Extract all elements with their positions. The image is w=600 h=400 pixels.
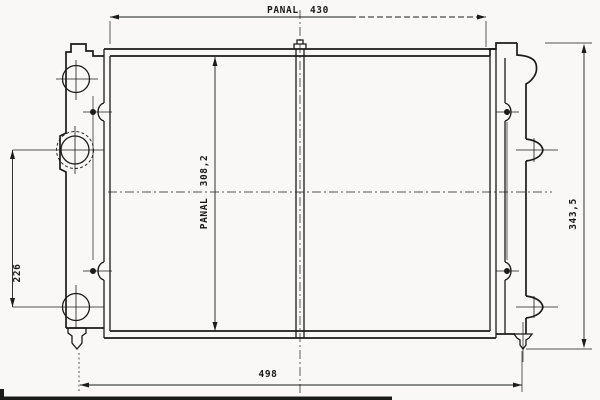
overall-width-label: 498	[259, 369, 278, 380]
dim-top-arrow-left	[110, 15, 119, 20]
dimension-overall-width: 498	[79, 351, 522, 392]
dimension-top-panel-width: PANAL 430	[110, 5, 486, 47]
radiator-technical-drawing: PANAL 430 PANAL 308,2 226 343,5 498	[0, 0, 600, 400]
panel-width-label: PANAL 430	[267, 5, 329, 16]
left-tank-top-bracket	[66, 44, 104, 63]
right-tank-top-bracket	[490, 43, 517, 56]
scan-artifacts	[0, 389, 392, 400]
scan-artifact-bottom-left	[0, 389, 4, 400]
left-tank-outer-edge	[60, 63, 66, 328]
overall-height-label: 343,5	[568, 198, 579, 230]
filler-neck-crosshair	[13, 126, 105, 174]
drain-plug	[68, 328, 86, 349]
dimension-left-fitting-spacing: 226	[10, 150, 23, 307]
right-tank-wall-bumps	[505, 103, 511, 280]
scan-artifact-bottom-strip	[0, 397, 392, 400]
left-tank-joint-bumps	[98, 103, 104, 280]
right-tank-core-joint	[490, 49, 496, 338]
dim-right-arrow-top	[582, 44, 587, 53]
dim-core-height-arrow-top	[213, 57, 218, 66]
right-tank-outer-edge	[517, 43, 537, 334]
radiator-core	[104, 49, 552, 338]
dim-bottom-arrow-right	[513, 383, 522, 388]
left-tank	[13, 44, 113, 349]
dim-bottom-arrow-left	[80, 383, 89, 388]
dim-top-arrow-right	[477, 15, 486, 20]
dim-left-arrow-top	[10, 150, 15, 159]
dimension-core-height: PANAL 308,2	[199, 57, 218, 331]
right-tank	[490, 43, 558, 362]
fitting-spacing-label: 226	[12, 264, 23, 283]
dim-left-arrow-bottom	[10, 298, 15, 307]
left-tank-core-joint	[104, 49, 110, 338]
dimension-overall-height: 343,5	[526, 43, 592, 349]
center-divider	[294, 10, 306, 394]
mounting-hole-bottom-left-crosshair	[13, 285, 105, 329]
dim-core-height-arrow-bottom	[213, 322, 218, 331]
dim-right-arrow-bottom	[582, 339, 587, 348]
panel-height-label: PANAL 308,2	[199, 155, 210, 230]
